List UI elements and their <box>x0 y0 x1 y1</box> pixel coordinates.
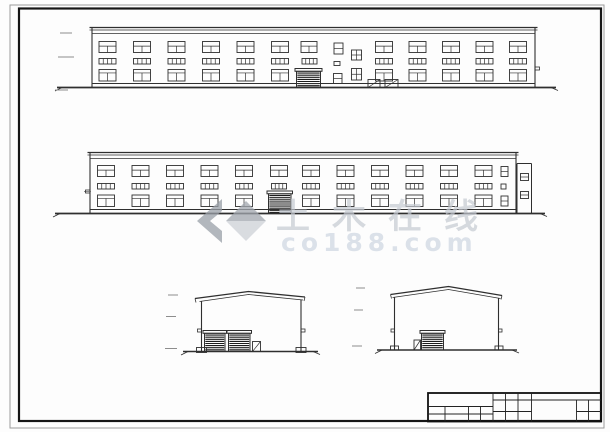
side-elevation-1 <box>55 28 558 92</box>
title-block <box>428 393 601 422</box>
cad-drawing-svg: 土木在线co188.com <box>0 0 610 432</box>
watermark-text-url: co188.com <box>281 228 478 257</box>
roller-shutter-door <box>227 331 252 352</box>
watermark-logo-icon <box>197 199 266 243</box>
end-elevation-1 <box>165 292 320 356</box>
roller-shutter-door <box>295 69 322 88</box>
end-elevation-2 <box>352 287 519 354</box>
drawing-page: 土木在线co188.com <box>0 0 610 432</box>
watermark: 土木在线co188.com <box>197 197 500 257</box>
roller-shutter-door <box>420 331 445 351</box>
